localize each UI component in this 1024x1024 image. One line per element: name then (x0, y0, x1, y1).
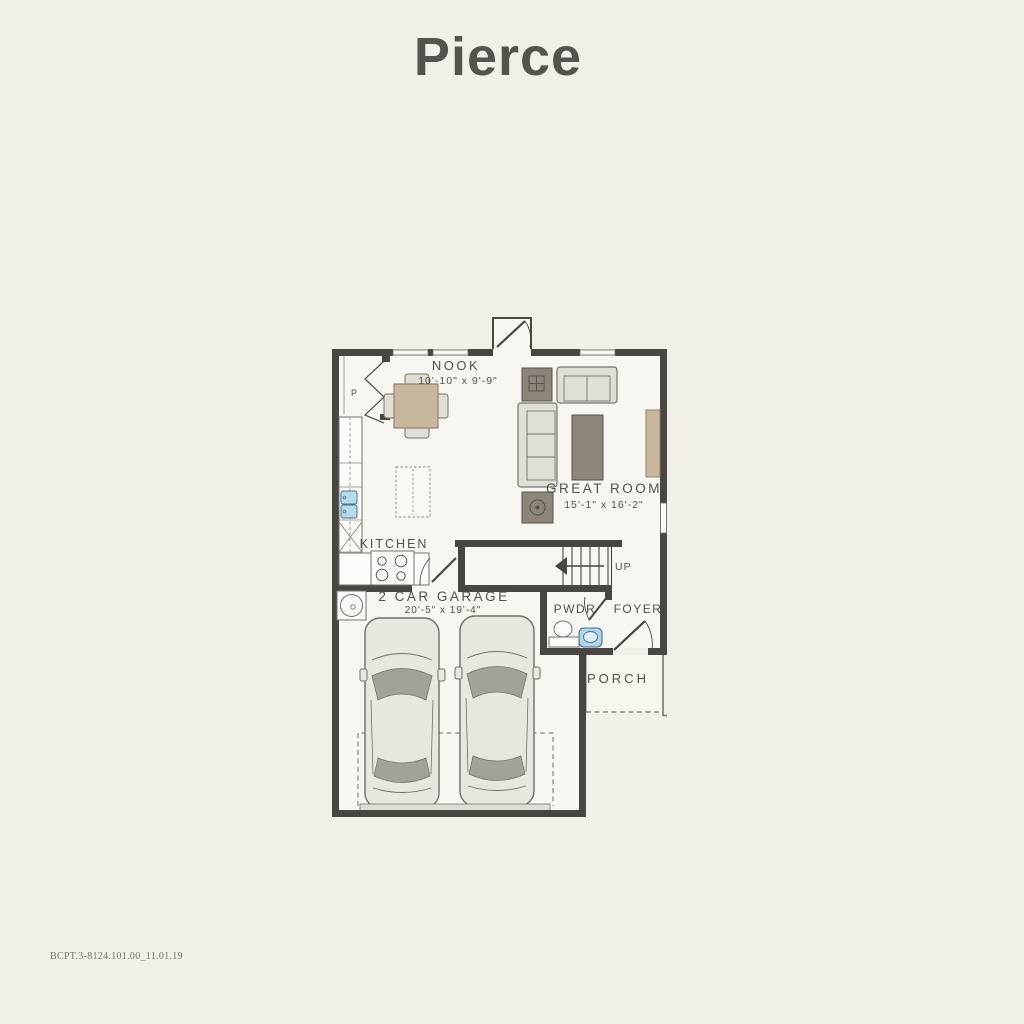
nook-label: NOOK (432, 358, 480, 373)
water-heater (337, 591, 366, 620)
car-left (360, 618, 445, 808)
window (580, 350, 615, 355)
vanity-sink (554, 621, 572, 637)
end-table-lamp (522, 368, 552, 401)
window (433, 350, 468, 355)
stairs-up-label: UP (615, 561, 632, 573)
plan-code: BCPT.3-8124.101.00_11.01.19 (50, 951, 183, 962)
end-table-round-lamp (522, 492, 553, 523)
rear-entry-bumpout (493, 318, 531, 349)
great-room-dimensions: 15'-1" x 16'-2" (564, 499, 644, 511)
window (393, 350, 428, 355)
powder-room-label: PWDR (554, 602, 597, 616)
pantry-label: P (351, 388, 357, 398)
car-right (455, 616, 540, 806)
garage-label: 2 CAR GARAGE (378, 589, 509, 604)
kitchen-island (396, 467, 430, 517)
nook-dimensions: 10'-10" x 9'-9" (418, 375, 498, 387)
kitchen-label: KITCHEN (360, 537, 429, 551)
plan-title: Pierce (0, 26, 996, 88)
loveseat (557, 367, 617, 403)
foyer-label: FOYER (614, 602, 663, 616)
floor-plan: NOOK 10'-10" x 9'-9" GREAT ROOM 15'-1" x… (330, 310, 670, 822)
nook-table (394, 384, 438, 428)
stove (371, 551, 414, 585)
coffee-table (572, 415, 603, 480)
window (661, 503, 667, 533)
great-room-label: GREAT ROOM (546, 481, 662, 496)
sofa (518, 403, 557, 487)
porch-label: PORCH (587, 671, 649, 686)
toilet (579, 628, 602, 647)
media-console (646, 410, 660, 477)
vanity-counter (549, 637, 579, 647)
garage-dimensions: 20'-5" x 19'-4" (405, 605, 482, 616)
kitchen-sink (341, 491, 357, 518)
